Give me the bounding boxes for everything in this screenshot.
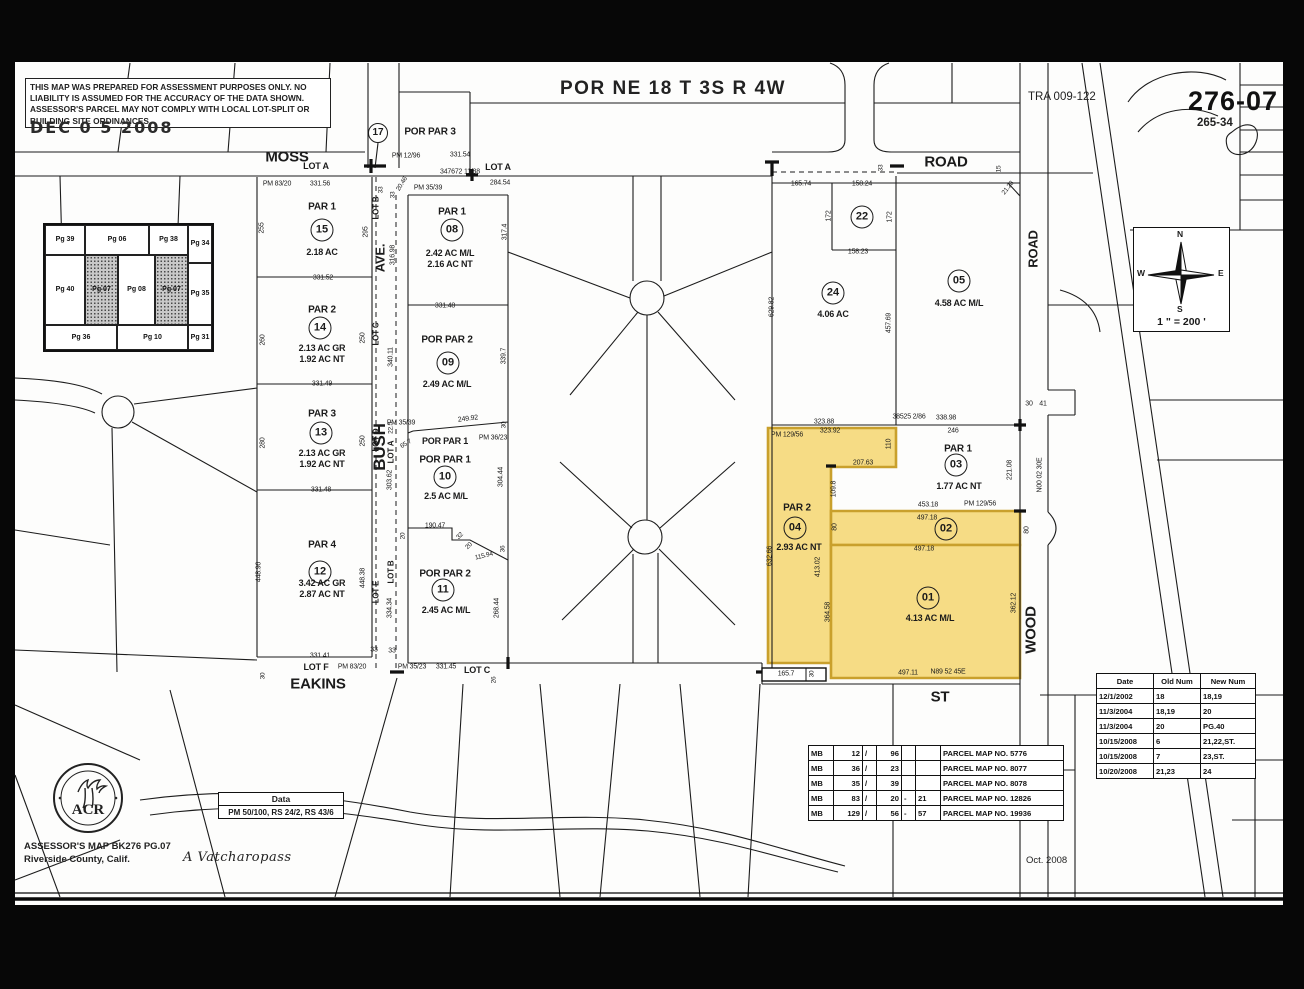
map-label: 38525 2/86 <box>892 414 925 421</box>
street-label-eakins: EAKINS <box>290 676 345 693</box>
map-label: 632.66 <box>767 546 774 566</box>
map-label: 1.92 AC NT <box>299 459 344 469</box>
mb-table-cell: 57 <box>916 806 941 821</box>
inset-cell-pg-36: Pg 36 <box>45 325 117 350</box>
map-revision-date: Oct. 2008 <box>1026 855 1067 866</box>
mb-table-cell: PARCEL MAP NO. 12826 <box>941 791 1064 806</box>
map-label: 33 <box>878 165 885 172</box>
inset-cell-pg-40: Pg 40 <box>45 255 85 325</box>
data-box-title: Data <box>219 793 343 806</box>
map-label: 158.23 <box>848 249 868 256</box>
mb-reference-table: MB12/96PARCEL MAP NO. 5776MB36/23PARCEL … <box>808 745 1064 821</box>
map-label: 497.18 <box>917 515 937 522</box>
map-label: 338.98 <box>936 415 956 422</box>
map-label: 4.58 AC M/L <box>935 298 983 308</box>
parcel-number-circle-08: 08 <box>441 219 464 242</box>
revision-table-cell: 7 <box>1154 749 1201 764</box>
map-label: 2.49 AC M/L <box>423 379 471 389</box>
mb-table-cell: / <box>863 746 877 761</box>
map-label: 331.48 <box>311 487 331 494</box>
map-label: PM 35/39 <box>387 420 415 427</box>
map-label: 250 <box>360 332 367 343</box>
map-label: LOT D <box>372 429 381 452</box>
revision-table-cell: 18,19 <box>1201 689 1256 704</box>
map-label: 304.44 <box>498 467 505 487</box>
revision-table-cell: 12/1/2002 <box>1097 689 1154 704</box>
mb-table-row: MB129/56-57PARCEL MAP NO. 19936 <box>809 806 1064 821</box>
map-label: 255 <box>259 222 266 233</box>
mb-table-cell: / <box>863 761 877 776</box>
data-reference-box: Data PM 50/100, RS 24/2, RS 43/6 <box>218 792 344 819</box>
revision-table-row: 10/15/2008621,22,ST. <box>1097 734 1256 749</box>
map-label: 2.93 AC NT <box>776 542 821 552</box>
revision-table-cell: 10/20/2008 <box>1097 764 1154 779</box>
assessor-county-line: Riverside County, Calif. <box>24 854 130 865</box>
revision-table-row: 11/3/200420PG.40 <box>1097 719 1256 734</box>
inset-cell-pg-38: Pg 38 <box>149 225 188 255</box>
map-label: 30 <box>1025 401 1032 408</box>
map-label: POR PAR 1 <box>419 455 470 466</box>
map-label: 2.13 AC GR <box>299 448 346 458</box>
main-lines <box>15 63 1283 897</box>
mb-table-cell: MB <box>809 746 834 761</box>
parcel-number-circle-13: 13 <box>310 422 333 445</box>
map-label: PM 83/20 <box>263 181 291 188</box>
mb-table-cell: PARCEL MAP NO. 8077 <box>941 761 1064 776</box>
revision-table-cell: 21,23 <box>1154 764 1201 779</box>
map-label: 260 <box>260 334 267 345</box>
map-label: PM 83/20 <box>338 664 366 671</box>
map-label: 629.82 <box>769 297 776 317</box>
parcel-number-circle-14: 14 <box>309 317 332 340</box>
inset-cell-pg-31: Pg 31 <box>188 325 212 350</box>
map-label: 33 <box>378 187 385 194</box>
mb-table-cell: 35 <box>834 776 863 791</box>
map-label: 331.41 <box>310 653 330 660</box>
map-label: 339.7 <box>501 348 508 365</box>
revision-table-cell: 11/3/2004 <box>1097 704 1154 719</box>
mb-table-cell: 20 <box>877 791 902 806</box>
map-label: 457.69 <box>886 313 893 333</box>
map-label: 33 <box>370 647 377 654</box>
map-label: PAR 1 <box>438 207 466 218</box>
map-label: LOT E <box>372 581 381 604</box>
parcel-number-circle-15: 15 <box>311 219 334 242</box>
compass-scale-box: N E S W 1 " = 200 ' <box>1133 227 1230 332</box>
mb-table-cell: PARCEL MAP NO. 5776 <box>941 746 1064 761</box>
map-label: 4.13 AC M/L <box>906 613 954 623</box>
map-label: 2.5 AC M/L <box>424 491 468 501</box>
map-label: PAR 1 <box>308 202 336 213</box>
map-label: 4.06 AC <box>817 309 848 319</box>
mb-table-cell <box>902 746 916 761</box>
map-label: LOT A <box>387 441 396 464</box>
revision-table-cell: 10/15/2008 <box>1097 749 1154 764</box>
street-label-ave: AVE. <box>373 244 388 273</box>
parcel-number-circle-24: 24 <box>822 282 845 305</box>
map-label: 36 <box>500 546 507 553</box>
parcel-01-highlight <box>831 545 1020 678</box>
map-book-page-number: 276-07 <box>1188 86 1278 117</box>
map-label: 190.47 <box>425 523 445 530</box>
inset-cell-pg-08: Pg 08 <box>118 255 155 325</box>
revision-table-row: 10/15/2008723,ST. <box>1097 749 1256 764</box>
mb-table-cell: PARCEL MAP NO. 19936 <box>941 806 1064 821</box>
revision-table-row: 11/3/200418,1920 <box>1097 704 1256 719</box>
map-label: 2.87 AC NT <box>299 589 344 599</box>
revision-table-cell: 20 <box>1201 704 1256 719</box>
revision-table-cell: 24 <box>1201 764 1256 779</box>
map-label: PM 12/96 <box>392 153 420 160</box>
inset-cell-pg-07: Pg 07 <box>155 255 188 325</box>
map-label: 364.58 <box>825 602 832 622</box>
mb-table-cell <box>902 761 916 776</box>
map-label: 497.18 <box>914 546 934 553</box>
map-label: PAR 3 <box>308 409 336 420</box>
map-label: 280 <box>260 437 267 448</box>
map-label: 207.63 <box>853 460 873 467</box>
map-label: 284.54 <box>490 180 510 187</box>
parcel-number-circle-22: 22 <box>851 206 874 229</box>
map-label: 331.54 <box>450 152 470 159</box>
revision-header-row: DateOld NumNew Num <box>1097 674 1256 689</box>
map-label: 1.77 AC NT <box>936 481 981 491</box>
mb-table-cell: / <box>863 776 877 791</box>
map-label: 268.44 <box>494 598 501 618</box>
mb-table-cell <box>916 746 941 761</box>
map-label: 26 <box>491 677 498 684</box>
map-label: 2.45 AC M/L <box>422 605 470 615</box>
map-label: 448.38 <box>360 568 367 588</box>
mb-table-cell <box>916 776 941 791</box>
map-label: 80 <box>832 523 839 530</box>
revision-table-cell: 6 <box>1154 734 1201 749</box>
map-label: 2.18 AC <box>306 247 337 257</box>
inset-cell-pg-39: Pg 39 <box>45 225 85 255</box>
map-label: 80 <box>1024 526 1031 533</box>
map-label: 172 <box>826 210 833 221</box>
mb-table-cell: MB <box>809 791 834 806</box>
parcel-number-circle-04: 04 <box>784 517 807 540</box>
mb-table-cell: 36 <box>834 761 863 776</box>
map-label: 109.8 <box>831 481 838 498</box>
map-label: 2.16 AC NT <box>427 259 472 269</box>
map-label: LOT A <box>485 162 511 172</box>
revision-table-row: 10/20/200821,2324 <box>1097 764 1256 779</box>
revision-table-cell: 23,ST. <box>1201 749 1256 764</box>
map-label: 497.11 <box>898 670 918 677</box>
data-box-value: PM 50/100, RS 24/2, RS 43/6 <box>219 806 343 818</box>
map-label: 448.96 <box>256 562 263 582</box>
mb-table-cell: 23 <box>877 761 902 776</box>
mb-table-cell: PARCEL MAP NO. 8078 <box>941 776 1064 791</box>
map-label: 453.18 <box>918 502 938 509</box>
compass-north-label: N <box>1177 229 1183 239</box>
seal-monogram: ACR <box>72 802 105 818</box>
map-title: POR NE 18 T 3S R 4W <box>560 78 786 100</box>
map-label: 413.02 <box>815 557 822 577</box>
mb-table-cell: 129 <box>834 806 863 821</box>
mb-table-cell: / <box>863 791 877 806</box>
map-label: 246 <box>947 428 958 435</box>
map-label: 331.45 <box>436 664 456 671</box>
map-label: PM 129/56 <box>771 432 803 439</box>
parcel-number-circle-05: 05 <box>948 270 971 293</box>
inset-cell-pg-35: Pg 35 <box>188 263 212 325</box>
street-label-st: ST <box>931 689 950 706</box>
drafter-signature: A Vatcharopass <box>183 850 292 865</box>
map-label: LOT A <box>303 161 329 171</box>
mb-table-cell: / <box>863 806 877 821</box>
revision-header-cell: New Num <box>1201 674 1256 689</box>
map-label: 2.42 AC M/L <box>426 248 474 258</box>
mb-table-cell: 83 <box>834 791 863 806</box>
map-label: PAR 4 <box>308 540 336 551</box>
map-label: 303.62 <box>387 470 394 490</box>
mb-table-cell: 96 <box>877 746 902 761</box>
mb-table-cell: 21 <box>916 791 941 806</box>
revision-table-cell: 18,19 <box>1154 704 1201 719</box>
map-label: 317.4 <box>502 224 509 241</box>
map-label: 295 <box>363 226 370 237</box>
map-label: 2.13 AC GR <box>299 343 346 353</box>
map-label: 323.92 <box>820 428 840 435</box>
map-label: 110 <box>886 439 893 450</box>
map-label: 334.34 <box>387 598 394 618</box>
mb-table-cell <box>902 776 916 791</box>
mb-table-row: MB35/39PARCEL MAP NO. 8078 <box>809 776 1064 791</box>
street-label-wood: WOOD <box>1023 606 1040 654</box>
revision-table-cell: 10/15/2008 <box>1097 734 1154 749</box>
street-label-road: ROAD <box>924 154 967 171</box>
county-assessor-seal: ACR <box>52 762 124 834</box>
revision-table-cell: 11/3/2004 <box>1097 719 1154 734</box>
mb-table-cell: - <box>902 806 916 821</box>
map-label: 1.92 AC NT <box>299 354 344 364</box>
parcel-number-circle-02: 02 <box>935 518 958 541</box>
mb-table-cell: - <box>902 791 916 806</box>
compass-west-label: W <box>1137 268 1145 278</box>
revision-table-row: 12/1/20021818,19 <box>1097 689 1256 704</box>
street-label-road-vertical: ROAD <box>1026 230 1041 267</box>
inset-cell-pg-10: Pg 10 <box>117 325 188 350</box>
revision-table-cell: PG.40 <box>1201 719 1256 734</box>
parcel-number-circle-17: 17 <box>368 123 388 143</box>
map-label: POR PAR 3 <box>404 127 455 138</box>
scale-label: 1 " = 200 ' <box>1134 316 1229 328</box>
map-label: 33 <box>390 192 397 199</box>
assessor-map-reference: ASSESSOR'S MAP BK276 PG.07 <box>24 841 171 852</box>
mb-table-cell <box>916 761 941 776</box>
map-label: 316.98 <box>390 245 397 265</box>
map-label: POR PAR 2 <box>421 335 472 346</box>
revision-header-cell: Date <box>1097 674 1154 689</box>
mb-table-row: MB83/20-21PARCEL MAP NO. 12826 <box>809 791 1064 806</box>
mb-table-cell: MB <box>809 761 834 776</box>
map-label: 331.52 <box>313 275 333 282</box>
map-label: PAR 2 <box>783 503 811 514</box>
revision-history-table: DateOld NumNew Num12/1/20021818,1911/3/2… <box>1096 673 1256 779</box>
revision-table-cell: 21,22,ST. <box>1201 734 1256 749</box>
map-label: 172 <box>887 211 894 222</box>
parcel-number-circle-11: 11 <box>432 579 455 602</box>
curved-lines <box>15 63 1257 872</box>
compass-east-label: E <box>1218 268 1224 278</box>
map-label: 347672 11/88 <box>440 169 480 176</box>
map-label: PM 36/23 <box>479 435 507 442</box>
map-label: 221.08 <box>1007 460 1014 480</box>
map-label: LOT C <box>464 665 490 675</box>
parcel-number-circle-12: 12 <box>309 561 332 584</box>
parcel-number-circle-10: 10 <box>434 466 457 489</box>
map-label: 41 <box>1039 401 1046 408</box>
assessor-map-frame: THIS MAP WAS PREPARED FOR ASSESSMENT PUR… <box>0 0 1304 989</box>
map-label: 331.56 <box>310 181 330 188</box>
map-label: POR PAR 1 <box>422 436 468 446</box>
mb-table-cell: MB <box>809 806 834 821</box>
map-label: PM 35/39 <box>414 185 442 192</box>
revision-header-cell: Old Num <box>1154 674 1201 689</box>
map-label: 362.12 <box>1011 593 1018 613</box>
map-label: LOT F <box>304 662 329 672</box>
page-index-inset-map: Pg 39Pg 06Pg 38Pg 34Pg 40Pg 07Pg 08Pg 07… <box>43 223 214 352</box>
highlighted-parcels <box>768 428 1020 678</box>
map-label: 340.11 <box>388 347 395 367</box>
map-label: 165.7 <box>778 671 795 678</box>
map-label: N89 52 45E <box>931 669 966 676</box>
received-date-stamp: DEC 0 5 2008 <box>30 118 173 137</box>
parcel-number-circle-03: 03 <box>945 454 968 477</box>
cross-reference-number: 265-34 <box>1197 117 1233 129</box>
map-label: LOT C <box>372 323 381 346</box>
map-label: PM 129/56 <box>964 501 996 508</box>
map-label: 158.24 <box>852 181 872 188</box>
map-label: 331.48 <box>435 303 455 310</box>
mb-table-cell: 56 <box>877 806 902 821</box>
mb-table-row: MB12/96PARCEL MAP NO. 5776 <box>809 746 1064 761</box>
map-label: 323.88 <box>814 419 834 426</box>
map-label: 331.49 <box>312 381 332 388</box>
map-label: PM 35/23 <box>398 664 426 671</box>
inset-cell-pg-07: Pg 07 <box>85 255 118 325</box>
map-label: 33 <box>388 648 395 655</box>
parcel-linework <box>0 0 1304 989</box>
map-label: LOT B <box>372 197 381 220</box>
revision-table-cell: 18 <box>1154 689 1201 704</box>
revision-table-cell: 20 <box>1154 719 1201 734</box>
map-label: 165.74 <box>791 181 811 188</box>
compass-south-label: S <box>1177 304 1183 314</box>
map-label: LOT B <box>387 561 396 584</box>
tra-label: TRA 009-122 <box>1028 91 1096 103</box>
map-label: 30 <box>260 673 267 680</box>
parcel-number-circle-09: 09 <box>437 352 460 375</box>
inset-cell-pg-34: Pg 34 <box>188 225 212 263</box>
map-label: 20 <box>400 533 407 540</box>
map-label: N00 02 30E <box>1037 458 1044 493</box>
mb-table-row: MB36/23PARCEL MAP NO. 8077 <box>809 761 1064 776</box>
map-label: 15 <box>996 166 1003 173</box>
mb-table-cell: 39 <box>877 776 902 791</box>
map-label: 30 <box>809 671 816 678</box>
map-label: 30 <box>501 422 508 429</box>
inset-cell-pg-06: Pg 06 <box>85 225 149 255</box>
mb-table-cell: 12 <box>834 746 863 761</box>
map-label: 250 <box>360 435 367 446</box>
parcel-number-circle-01: 01 <box>917 587 940 610</box>
map-label: PAR 2 <box>308 305 336 316</box>
mb-table-cell: MB <box>809 776 834 791</box>
